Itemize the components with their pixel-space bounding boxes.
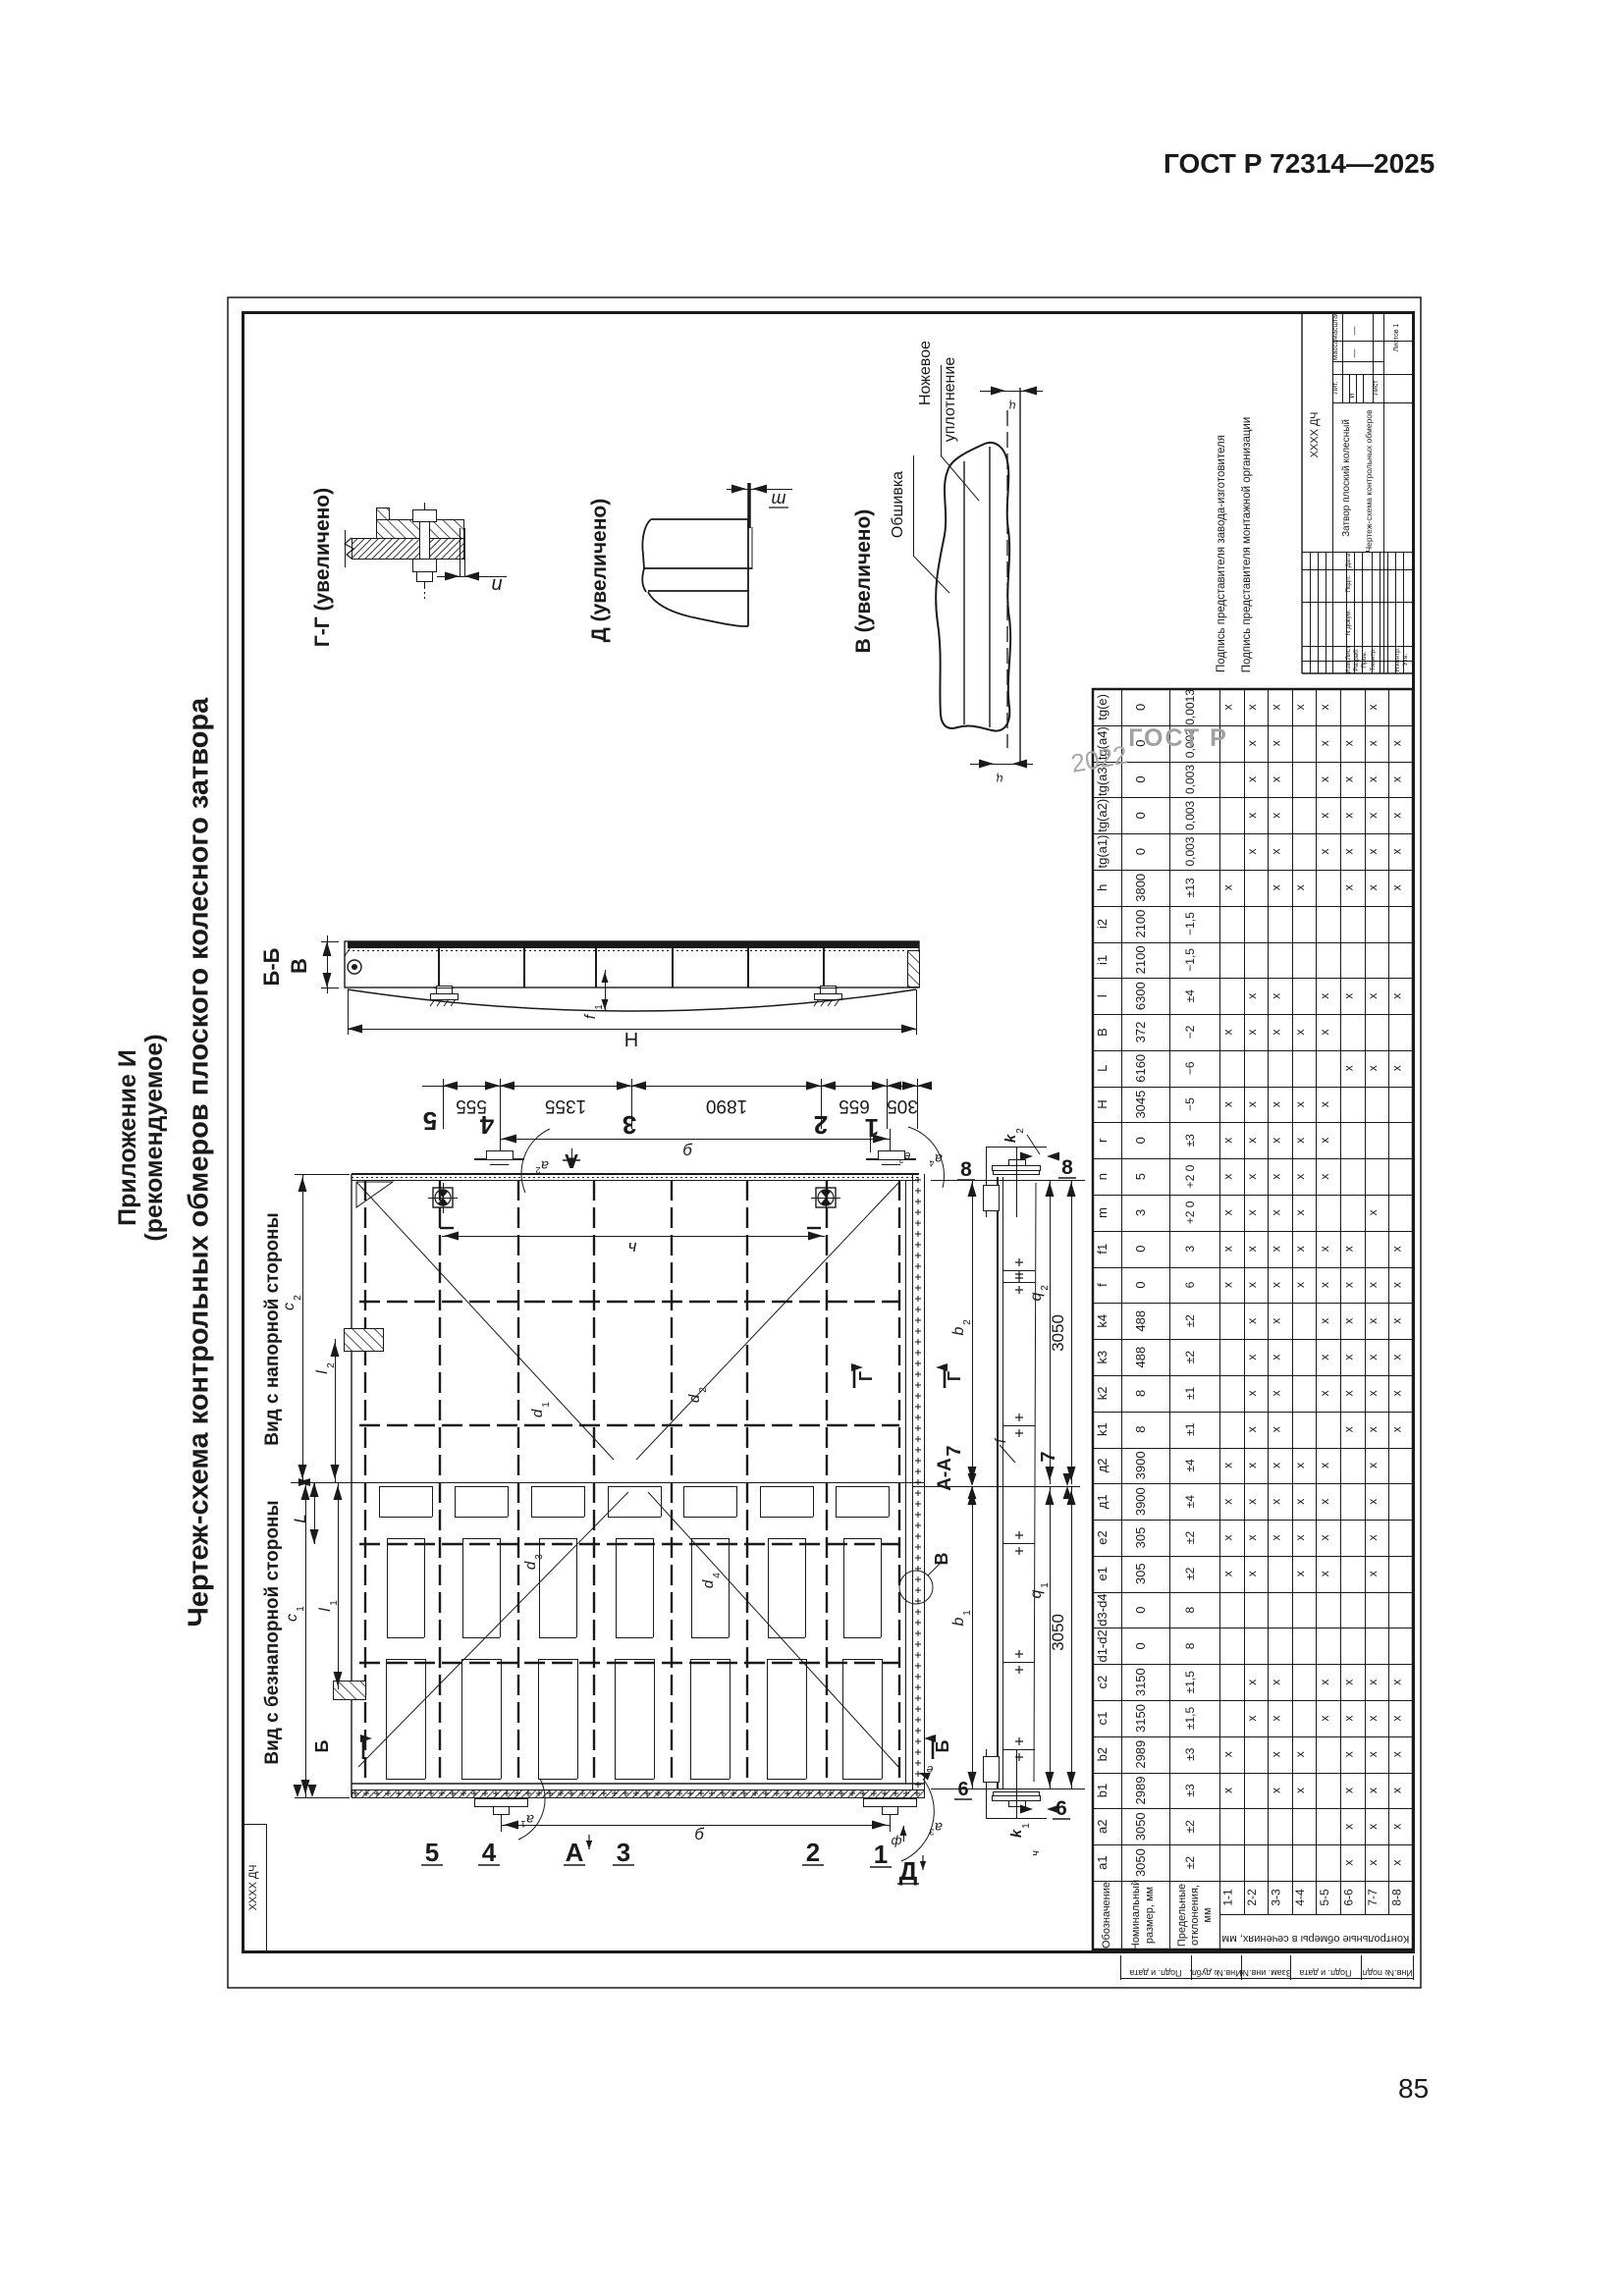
svg-text:±1,5: ±1,5 xyxy=(1183,1671,1197,1694)
svg-text:0: 0 xyxy=(1133,1281,1148,1288)
svg-text:Обозначение: Обозначение xyxy=(1101,1882,1112,1949)
svg-text:В: В xyxy=(287,958,311,974)
svg-text:х: х xyxy=(1245,704,1259,710)
svg-text:7-7: 7-7 xyxy=(1366,1889,1380,1906)
svg-text:х: х xyxy=(1270,1174,1283,1180)
svg-text:х: х xyxy=(1245,1174,1259,1180)
svg-text:х: х xyxy=(1270,1751,1283,1757)
svg-text:х: х xyxy=(1390,1390,1404,1396)
svg-text:305: 305 xyxy=(1133,1527,1148,1549)
svg-text:Инв.№ подл.: Инв.№ подл. xyxy=(1360,1968,1413,1978)
svg-text:2100: 2100 xyxy=(1133,910,1148,938)
svg-text:х: х xyxy=(1366,1788,1380,1793)
svg-text:х: х xyxy=(1270,1282,1283,1288)
svg-text:отклонения,: отклонения, xyxy=(1189,1885,1201,1946)
svg-text:d1-d2: d1-d2 xyxy=(1095,1629,1110,1662)
svg-text:е2: е2 xyxy=(1095,1530,1110,1544)
svg-text:х: х xyxy=(1245,1426,1259,1432)
svg-text:х: х xyxy=(1341,1246,1355,1252)
svg-text:х: х xyxy=(1318,993,1331,999)
svg-text:b2: b2 xyxy=(1095,1747,1110,1761)
svg-text:3050: 3050 xyxy=(1133,1848,1148,1877)
svg-text:0,0013: 0,0013 xyxy=(1183,689,1197,725)
svg-text:8: 8 xyxy=(1061,1156,1073,1179)
svg-text:1890: 1890 xyxy=(706,1095,747,1116)
svg-text:х: х xyxy=(1390,740,1404,746)
svg-text:х: х xyxy=(1318,704,1331,710)
svg-text:2100: 2100 xyxy=(1133,945,1148,974)
svg-text:х: х xyxy=(1220,1282,1234,1288)
svg-text:8: 8 xyxy=(1133,1426,1148,1433)
svg-text:х: х xyxy=(1293,1174,1307,1180)
svg-text:х: х xyxy=(1341,1355,1355,1361)
svg-text:b: b xyxy=(950,1617,967,1626)
svg-text:а: а xyxy=(541,1158,549,1174)
svg-text:1: 1 xyxy=(962,1610,973,1616)
svg-text:4: 4 xyxy=(929,1158,934,1168)
svg-text:х: х xyxy=(1220,1101,1234,1107)
svg-text:d3-d4: d3-d4 xyxy=(1095,1593,1110,1626)
svg-text:х: х xyxy=(1270,1138,1283,1144)
svg-text:±2: ±2 xyxy=(1183,1351,1197,1364)
svg-text:х: х xyxy=(1318,1282,1331,1288)
svg-text:k2: k2 xyxy=(1095,1387,1110,1401)
svg-text:r: r xyxy=(1095,1138,1110,1143)
svg-text:х: х xyxy=(1245,776,1259,782)
svg-text:с: с xyxy=(284,1614,300,1622)
svg-text:х: х xyxy=(1220,1571,1234,1576)
svg-text:3045: 3045 xyxy=(1133,1091,1148,1119)
svg-text:ш: ш xyxy=(772,488,786,507)
svg-text:х: х xyxy=(1318,1571,1331,1576)
svg-text:3150: 3150 xyxy=(1133,1704,1148,1733)
svg-text:Дата: Дата xyxy=(1345,553,1352,567)
svg-text:6300: 6300 xyxy=(1133,982,1148,1010)
svg-text:х: х xyxy=(1366,776,1380,782)
svg-text:х: х xyxy=(1220,1030,1234,1036)
svg-text:х: х xyxy=(1270,1680,1283,1685)
svg-text:х: х xyxy=(1245,1499,1259,1505)
svg-text:х: х xyxy=(1270,1030,1283,1036)
svg-text:х: х xyxy=(1245,1716,1259,1722)
svg-text:х: х xyxy=(1366,1751,1380,1757)
svg-text:Г: Г xyxy=(856,1371,876,1381)
svg-text:х: х xyxy=(1366,1209,1380,1215)
svg-text:х: х xyxy=(1270,1716,1283,1722)
svg-text:5: 5 xyxy=(1133,1173,1148,1180)
svg-text:l: l xyxy=(1095,994,1110,997)
svg-text:а: а xyxy=(935,1820,943,1836)
svg-text:3900: 3900 xyxy=(1133,1487,1148,1516)
svg-text:х: х xyxy=(1366,813,1380,819)
svg-text:х: х xyxy=(1220,1535,1234,1541)
svg-text:х: х xyxy=(1366,1824,1380,1830)
svg-text:tg(а2): tg(а2) xyxy=(1095,799,1110,832)
svg-text:а2: а2 xyxy=(1095,1820,1110,1834)
svg-text:х: х xyxy=(1341,1318,1355,1324)
svg-text:х: х xyxy=(1318,1318,1331,1324)
svg-text:0: 0 xyxy=(1133,812,1148,819)
svg-text:х: х xyxy=(1390,1680,1404,1685)
svg-text:А: А xyxy=(566,1838,584,1867)
svg-text:4: 4 xyxy=(482,1838,497,1867)
svg-text:Обшивка: Обшивка xyxy=(890,471,906,538)
svg-text:3: 3 xyxy=(617,1838,630,1867)
svg-text:Подп. и дата: Подп. и дата xyxy=(1129,1968,1181,1978)
svg-text:х: х xyxy=(1293,1138,1307,1144)
svg-text:Вид с безнапорной стороны: Вид с безнапорной стороны xyxy=(262,1500,283,1764)
svg-text:х: х xyxy=(1270,849,1283,855)
svg-text:х: х xyxy=(1245,1246,1259,1252)
svg-text:В: В xyxy=(932,1553,951,1566)
svg-text:х: х xyxy=(1366,1571,1380,1576)
svg-text:Подп. и дата: Подп. и дата xyxy=(1299,1968,1351,1978)
svg-text:±3: ±3 xyxy=(1183,1784,1197,1797)
svg-text:ХХХХ ДЧ: ХХХХ ДЧ xyxy=(247,1865,259,1911)
svg-text:х: х xyxy=(1220,1788,1234,1793)
svg-text:3: 3 xyxy=(623,1110,636,1140)
svg-text:6160: 6160 xyxy=(1133,1054,1148,1083)
svg-text:l: l xyxy=(317,1608,334,1612)
svg-text:х: х xyxy=(1318,1463,1331,1468)
svg-text:ч: ч xyxy=(1030,1850,1042,1856)
svg-text:х: х xyxy=(1270,1318,1283,1324)
svg-text:2989: 2989 xyxy=(1133,1777,1148,1805)
svg-text:tg(е): tg(е) xyxy=(1095,694,1110,721)
svg-text:5: 5 xyxy=(423,1106,437,1136)
svg-text:х: х xyxy=(1341,1716,1355,1722)
svg-text:х: х xyxy=(1318,1716,1331,1722)
svg-text:х: х xyxy=(1293,884,1307,890)
svg-text:х: х xyxy=(1318,1246,1331,1252)
svg-text:х: х xyxy=(1366,1463,1380,1468)
svg-text:х: х xyxy=(1245,1101,1259,1107)
svg-text:х: х xyxy=(1390,776,1404,782)
svg-text:0,003: 0,003 xyxy=(1183,800,1197,829)
svg-text:Н.контр.: Н.контр. xyxy=(1394,647,1401,671)
svg-text:х: х xyxy=(1366,740,1380,746)
svg-text:l: l xyxy=(314,1370,331,1374)
svg-text:х: х xyxy=(1245,993,1259,999)
svg-text:х: х xyxy=(1270,1355,1283,1361)
svg-text:и: и xyxy=(491,573,502,595)
svg-text:3: 3 xyxy=(1133,1209,1148,1216)
svg-text:Г-Г (увеличено): Г-Г (увеличено) xyxy=(311,488,334,647)
svg-text:Чертеж-схема контрольных обмер: Чертеж-схема контрольных обмеров xyxy=(1364,409,1374,553)
svg-text:4-4: 4-4 xyxy=(1293,1889,1307,1906)
svg-text:d: d xyxy=(529,1409,546,1417)
svg-text:3150: 3150 xyxy=(1133,1668,1148,1696)
svg-text:х: х xyxy=(1366,1499,1380,1505)
svg-text:±2: ±2 xyxy=(1183,1567,1197,1580)
svg-text:х: х xyxy=(1245,1535,1259,1541)
svg-text:х: х xyxy=(1390,884,1404,890)
svg-text:±4: ±4 xyxy=(1183,1495,1197,1509)
svg-text:1: 1 xyxy=(296,1606,306,1612)
svg-text:8: 8 xyxy=(1183,1642,1197,1649)
svg-text:х: х xyxy=(1293,1209,1307,1215)
svg-text:х: х xyxy=(1341,1824,1355,1830)
svg-text:х: х xyxy=(1341,1282,1355,1288)
svg-text:Д: Д xyxy=(899,1856,918,1886)
svg-text:Масштаб: Масштаб xyxy=(1331,311,1339,341)
svg-text:0: 0 xyxy=(1133,1606,1148,1613)
svg-text:2989: 2989 xyxy=(1133,1740,1148,1769)
svg-text:х: х xyxy=(1341,1751,1355,1757)
svg-text:размер, мм: размер, мм xyxy=(1144,1887,1156,1944)
svg-text:Разраб.: Разраб. xyxy=(1352,648,1360,671)
svg-text:х: х xyxy=(1318,1390,1331,1396)
svg-text:8: 8 xyxy=(1183,1606,1197,1613)
svg-text:3: 3 xyxy=(534,1554,545,1560)
svg-text:х: х xyxy=(1366,1535,1380,1541)
svg-text:−2: −2 xyxy=(1183,1025,1197,1039)
svg-text:х: х xyxy=(1366,993,1380,999)
svg-text:х: х xyxy=(1318,1499,1331,1505)
svg-text:х: х xyxy=(1245,813,1259,819)
svg-text:х: х xyxy=(1366,1318,1380,1324)
svg-text:ГОСТ Р: ГОСТ Р xyxy=(1128,724,1228,752)
svg-text:8-8: 8-8 xyxy=(1390,1889,1404,1906)
svg-text:а: а xyxy=(526,1812,534,1828)
svg-text:х: х xyxy=(1318,1355,1331,1361)
svg-text:х: х xyxy=(1245,1318,1259,1324)
svg-text:х: х xyxy=(1270,1535,1283,1541)
svg-text:х: х xyxy=(1293,1101,1307,1107)
svg-text:N докум.: N докум. xyxy=(1345,610,1352,635)
svg-text:Вид с напорной стороны: Вид с напорной стороны xyxy=(262,1212,283,1446)
svg-text:х: х xyxy=(1390,1318,1404,1324)
svg-text:х: х xyxy=(1341,884,1355,890)
svg-text:х: х xyxy=(1390,1751,1404,1757)
svg-text:Ножевое: Ножевое xyxy=(917,341,934,405)
svg-text:q: q xyxy=(1028,1292,1045,1301)
svg-text:х: х xyxy=(1366,884,1380,890)
svg-text:Инв.№ дубл.: Инв.№ дубл. xyxy=(1189,1968,1241,1978)
svg-text:0: 0 xyxy=(1133,775,1148,782)
svg-text:х: х xyxy=(1293,1463,1307,1468)
svg-text:1: 1 xyxy=(520,1819,525,1829)
svg-text:х: х xyxy=(1341,1680,1355,1685)
svg-text:х: х xyxy=(1270,1426,1283,1432)
svg-text:х: х xyxy=(1318,1535,1331,1541)
svg-text:Контрольные обмеры в сечениях,: Контрольные обмеры в сечениях, мм xyxy=(1222,1933,1410,1945)
svg-text:2: 2 xyxy=(293,1295,303,1301)
svg-text:4: 4 xyxy=(712,1573,723,1578)
svg-text:и: и xyxy=(1347,394,1356,398)
svg-text:х: х xyxy=(1318,1101,1331,1107)
svg-text:х: х xyxy=(1366,1426,1380,1432)
svg-text:k3: k3 xyxy=(1095,1351,1110,1364)
svg-text:х: х xyxy=(1245,1355,1259,1361)
svg-text:х: х xyxy=(1318,1680,1331,1685)
svg-text:372: 372 xyxy=(1133,1022,1148,1043)
svg-text:х: х xyxy=(1318,849,1331,855)
svg-text:х: х xyxy=(1341,776,1355,782)
svg-text:—: — xyxy=(1349,327,1359,336)
svg-text:1: 1 xyxy=(329,1600,340,1606)
svg-text:0,003: 0,003 xyxy=(1183,836,1197,866)
svg-text:−6: −6 xyxy=(1183,1061,1197,1075)
svg-text:f: f xyxy=(993,1437,1009,1443)
svg-text:х: х xyxy=(1366,1390,1380,1396)
svg-text:х: х xyxy=(1293,1246,1307,1252)
svg-text:6-6: 6-6 xyxy=(1341,1889,1355,1906)
svg-text:х: х xyxy=(1390,1065,1404,1071)
svg-text:х: х xyxy=(1270,704,1283,710)
svg-text:х: х xyxy=(1270,1101,1283,1107)
svg-text:±1: ±1 xyxy=(1183,1386,1197,1400)
svg-text:х: х xyxy=(1293,704,1307,710)
svg-text:х: х xyxy=(1390,1788,1404,1793)
svg-text:х: х xyxy=(1390,813,1404,819)
svg-text:0: 0 xyxy=(1133,1137,1148,1144)
svg-text:5: 5 xyxy=(425,1838,439,1867)
svg-text:1: 1 xyxy=(1040,1582,1051,1588)
svg-text:х: х xyxy=(1220,1138,1234,1144)
svg-text:−5: −5 xyxy=(1183,1097,1197,1111)
svg-text:+2 0: +2 0 xyxy=(1183,1201,1197,1224)
svg-text:х: х xyxy=(1220,1246,1234,1252)
svg-text:х: х xyxy=(1341,993,1355,999)
svg-text:х: х xyxy=(1366,704,1380,710)
svg-text:х: х xyxy=(1318,1030,1331,1036)
svg-text:L: L xyxy=(291,1514,309,1522)
svg-text:х: х xyxy=(1390,1282,1404,1288)
svg-text:1: 1 xyxy=(541,1402,552,1408)
svg-text:х: х xyxy=(1245,1209,1259,1215)
svg-text:655: 655 xyxy=(839,1095,870,1116)
svg-text:х: х xyxy=(1341,1390,1355,1396)
svg-text:m: m xyxy=(1095,1207,1110,1218)
svg-text:х: х xyxy=(1366,1716,1380,1722)
svg-text:i1: i1 xyxy=(1095,955,1110,965)
svg-text:х: х xyxy=(1270,1209,1283,1215)
svg-text:1-1: 1-1 xyxy=(1220,1889,1234,1906)
svg-text:3: 3 xyxy=(1183,1246,1197,1253)
svg-text:2: 2 xyxy=(698,1387,709,1393)
svg-text:305: 305 xyxy=(1133,1563,1148,1584)
svg-text:х: х xyxy=(1245,1282,1259,1288)
svg-text:Подп.: Подп. xyxy=(1345,575,1352,592)
svg-text:х: х xyxy=(1366,849,1380,855)
svg-text:f: f xyxy=(582,1013,599,1019)
svg-text:ХХХХ ДЧ: ХХХХ ДЧ xyxy=(1309,412,1321,458)
svg-text:q: q xyxy=(1028,1589,1045,1598)
svg-text:Б: Б xyxy=(312,1739,332,1752)
svg-text:L: L xyxy=(1095,1065,1110,1072)
svg-text:tg(а1): tg(а1) xyxy=(1095,835,1110,869)
svg-text:0,003: 0,003 xyxy=(1183,765,1197,794)
svg-text:1355: 1355 xyxy=(545,1095,586,1116)
svg-text:х: х xyxy=(1270,1463,1283,1468)
svg-text:2: 2 xyxy=(1040,1285,1051,1291)
svg-text:мм: мм xyxy=(1202,1907,1214,1922)
svg-text:Предельные: Предельные xyxy=(1176,1884,1188,1947)
svg-text:а1: а1 xyxy=(1095,1855,1110,1869)
svg-text:х: х xyxy=(1390,1824,1404,1830)
svg-text:+2 0: +2 0 xyxy=(1183,1164,1197,1188)
svg-text:х: х xyxy=(1270,1788,1283,1793)
svg-text:−1,5: −1,5 xyxy=(1183,948,1197,972)
svg-text:х: х xyxy=(1293,1499,1307,1505)
svg-text:х: х xyxy=(1341,849,1355,855)
svg-text:0: 0 xyxy=(1133,704,1148,711)
svg-text:Н: Н xyxy=(1095,1099,1110,1108)
svg-text:х: х xyxy=(1293,1282,1307,1288)
svg-text:2: 2 xyxy=(1015,1128,1026,1134)
svg-text:±2: ±2 xyxy=(1183,1820,1197,1834)
svg-text:б: б xyxy=(682,1141,693,1159)
svg-text:305: 305 xyxy=(887,1095,918,1116)
svg-text:d: d xyxy=(522,1561,539,1570)
svg-text:х: х xyxy=(1245,740,1259,746)
svg-text:b: b xyxy=(950,1326,967,1335)
svg-text:х: х xyxy=(1341,1426,1355,1432)
svg-text:2022: 2022 xyxy=(1068,739,1129,778)
svg-text:0: 0 xyxy=(1133,1642,1148,1649)
svg-text:д1: д1 xyxy=(1095,1494,1110,1509)
svg-text:х: х xyxy=(1293,1535,1307,1541)
svg-text:х: х xyxy=(1245,1571,1259,1576)
svg-text:4: 4 xyxy=(479,1110,494,1140)
svg-text:б: б xyxy=(694,1825,705,1843)
svg-text:х: х xyxy=(1341,1788,1355,1793)
svg-text:х: х xyxy=(1270,813,1283,819)
svg-text:х: х xyxy=(1390,849,1404,855)
svg-text:2-2: 2-2 xyxy=(1245,1889,1259,1906)
svg-text:3050: 3050 xyxy=(1049,1314,1067,1352)
svg-text:d: d xyxy=(700,1579,717,1588)
svg-text:Масса: Масса xyxy=(1332,341,1339,361)
svg-text:±2: ±2 xyxy=(1183,1314,1197,1328)
svg-text:2: 2 xyxy=(326,1362,337,1368)
svg-text:3050: 3050 xyxy=(1133,1812,1148,1841)
svg-text:х: х xyxy=(1366,1065,1380,1071)
svg-text:k4: k4 xyxy=(1095,1314,1110,1328)
svg-text:Взам. инв.№: Взам. инв.№ xyxy=(1239,1968,1292,1978)
svg-text:Изм.Лист: Изм.Лист xyxy=(1345,646,1352,673)
svg-text:Затвор плоский колесный: Затвор плоский колесный xyxy=(1341,419,1352,537)
svg-text:Т.контр.: Т.контр. xyxy=(1370,648,1377,671)
svg-text:х: х xyxy=(1293,1751,1307,1757)
svg-text:д2: д2 xyxy=(1095,1458,1110,1472)
svg-text:х: х xyxy=(1270,776,1283,782)
svg-text:х: х xyxy=(1318,1138,1331,1144)
svg-text:В: В xyxy=(1095,1028,1110,1037)
svg-text:±2: ±2 xyxy=(1183,1856,1197,1870)
svg-text:х: х xyxy=(1270,993,1283,999)
svg-text:±4: ±4 xyxy=(1183,989,1197,1003)
svg-text:В (увеличено): В (увеличено) xyxy=(852,509,875,654)
svg-text:х: х xyxy=(1293,1571,1307,1576)
svg-text:х: х xyxy=(1245,1030,1259,1036)
svg-text:1: 1 xyxy=(874,1840,888,1869)
svg-text:0: 0 xyxy=(1133,848,1148,855)
svg-text:х: х xyxy=(1390,1860,1404,1866)
svg-text:Г: Г xyxy=(945,1371,964,1381)
svg-text:х: х xyxy=(1341,1065,1355,1071)
svg-text:b1: b1 xyxy=(1095,1784,1110,1797)
svg-text:−1,5: −1,5 xyxy=(1183,912,1197,935)
svg-text:Лист: Лист xyxy=(1373,380,1380,396)
svg-text:уплотнение: уплотнение xyxy=(942,357,958,443)
svg-text:0: 0 xyxy=(1133,1246,1148,1253)
svg-text:х: х xyxy=(1366,1282,1380,1288)
svg-text:х: х xyxy=(1318,776,1331,782)
svg-text:1: 1 xyxy=(594,1004,605,1010)
svg-text:f: f xyxy=(1095,1283,1110,1287)
